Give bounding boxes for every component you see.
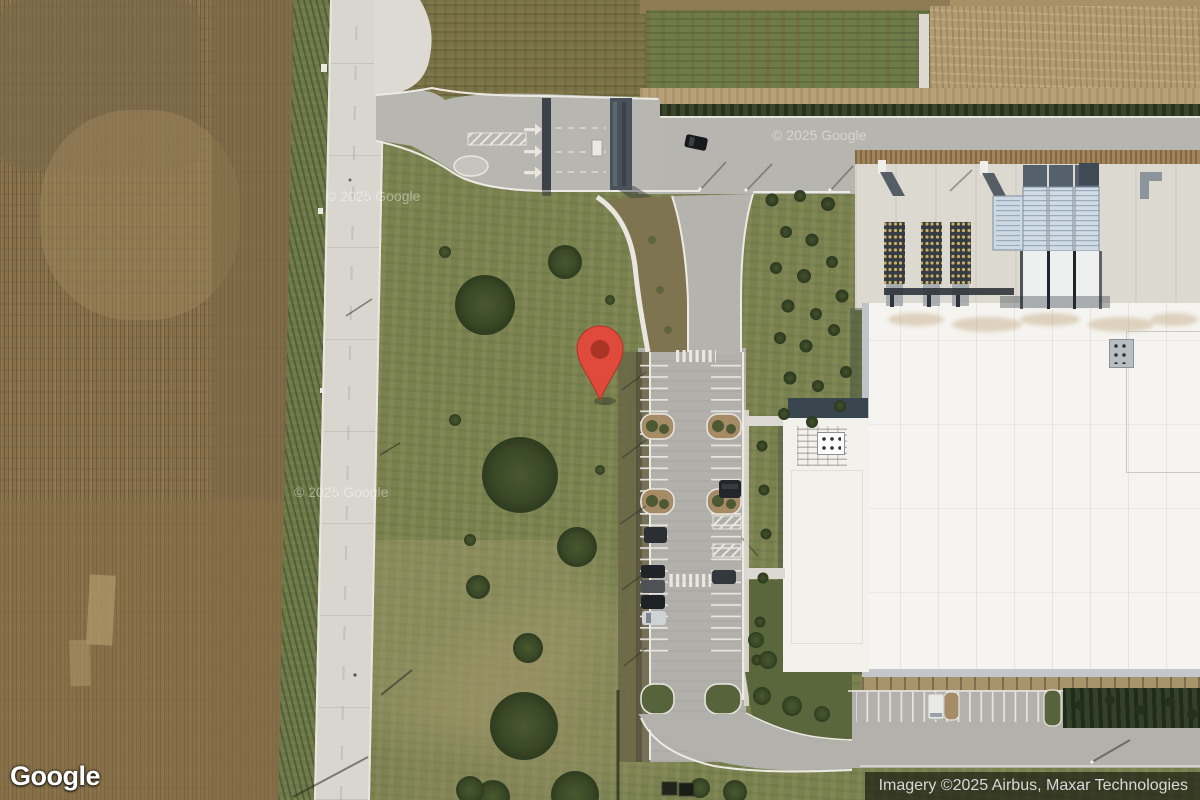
scrub-field-strip	[374, 0, 660, 96]
gravel-path	[640, 88, 1200, 105]
office-wing-roof	[783, 418, 869, 672]
roof-stain	[1088, 317, 1154, 332]
map-canvas[interactable]: © 2025 Google © 2025 Google © 2025 Googl…	[0, 0, 1200, 800]
parking-lot	[638, 348, 746, 762]
parking-lot-southeast	[848, 690, 1200, 768]
vent-dots	[821, 436, 841, 451]
google-logo[interactable]: Google	[10, 761, 100, 792]
roof-stain	[1150, 313, 1198, 326]
map-pin[interactable]	[570, 318, 630, 410]
roof-expansion-joint	[1126, 331, 1200, 473]
concrete-pad	[919, 14, 929, 88]
dirt-field-ne	[930, 6, 1200, 92]
vent-dots	[1113, 343, 1130, 364]
road-centerline	[340, 0, 358, 800]
datacenter-roof	[862, 303, 1200, 677]
roof-stain	[1020, 313, 1080, 326]
pin-body	[577, 326, 623, 400]
field-patch	[40, 110, 240, 320]
lawn-dry-patches	[350, 540, 680, 800]
grass-strip	[646, 10, 938, 90]
tile-watermark: © 2025 Google	[772, 127, 866, 143]
rooftop-unit	[1109, 339, 1134, 368]
roof-shadow-band	[788, 398, 868, 420]
roof-stain	[888, 313, 944, 326]
pin-inner-circle	[591, 340, 610, 359]
roof-expansion-joint	[791, 470, 863, 644]
farmland-west	[0, 0, 316, 800]
field-patch	[86, 574, 116, 645]
rooftop-unit	[817, 432, 845, 455]
hedge-row-southeast	[1063, 688, 1200, 728]
equipment-yard	[855, 150, 1200, 310]
tile-watermark: © 2025 Google	[326, 188, 420, 204]
roof-stain	[952, 317, 1022, 332]
mulch-border	[855, 150, 1200, 164]
pin-shadow	[594, 397, 616, 405]
tile-watermark: © 2025 Google	[294, 484, 388, 500]
field-patch	[69, 640, 91, 687]
field-patch	[0, 500, 310, 800]
imagery-attribution: Imagery ©2025 Airbus, Maxar Technologies	[865, 772, 1200, 800]
